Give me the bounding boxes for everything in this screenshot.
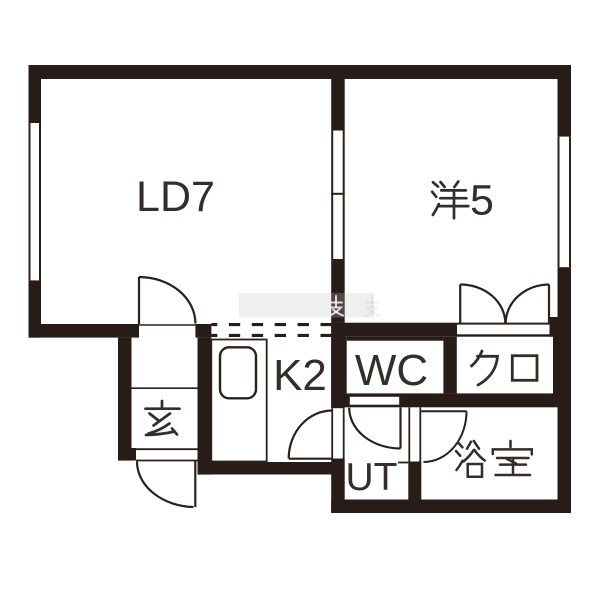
svg-text:WC: WC <box>355 346 428 395</box>
svg-text:UT: UT <box>346 456 398 499</box>
svg-text:K2: K2 <box>273 351 327 400</box>
svg-text:LD7: LD7 <box>136 173 215 221</box>
svg-text:5: 5 <box>470 177 494 225</box>
